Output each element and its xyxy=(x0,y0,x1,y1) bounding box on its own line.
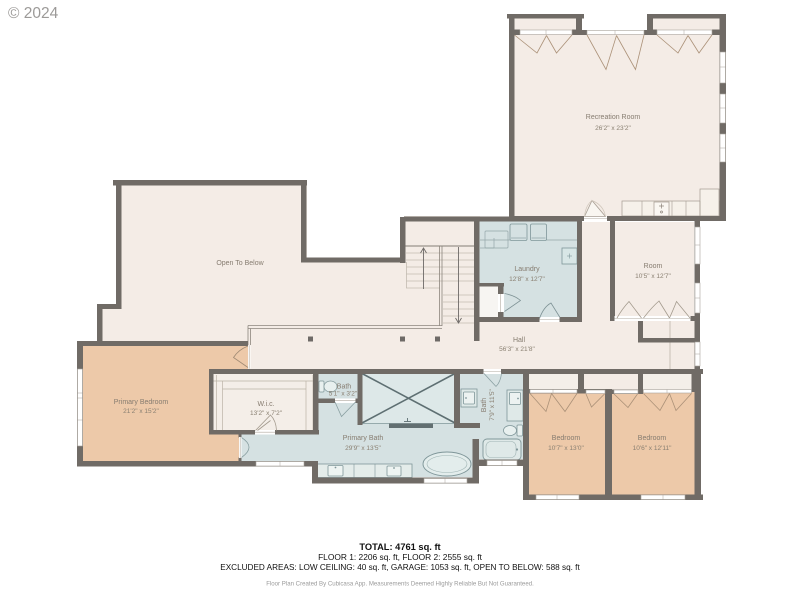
svg-text:29'9" x 13'5": 29'9" x 13'5" xyxy=(345,445,381,452)
svg-text:TOTAL: 4761 sq. ft: TOTAL: 4761 sq. ft xyxy=(359,542,440,552)
svg-text:FLOOR 1: 2206 sq. ft, FLOOR 2:: FLOOR 1: 2206 sq. ft, FLOOR 2: 2555 sq. … xyxy=(318,552,483,562)
svg-text:Bedroom: Bedroom xyxy=(552,435,581,442)
svg-text:Open To Below: Open To Below xyxy=(216,260,264,267)
svg-text:5'1" x 3'2": 5'1" x 3'2" xyxy=(329,391,358,398)
svg-text:Hall: Hall xyxy=(513,337,526,344)
svg-text:21'2" x 15'2": 21'2" x 15'2" xyxy=(123,408,159,415)
svg-text:Recreation Room: Recreation Room xyxy=(586,114,641,121)
svg-text:13'2" x 7'2": 13'2" x 7'2" xyxy=(250,410,283,417)
svg-text:12'8" x 12'7": 12'8" x 12'7" xyxy=(509,276,545,283)
svg-text:10'6" x 12'11": 10'6" x 12'11" xyxy=(633,445,672,452)
svg-text:Primary Bath: Primary Bath xyxy=(343,435,384,442)
svg-text:26'2" x 23'2": 26'2" x 23'2" xyxy=(595,125,631,132)
svg-text:56'3" x 21'8": 56'3" x 21'8" xyxy=(499,346,535,353)
svg-text:10'7" x 13'0": 10'7" x 13'0" xyxy=(548,445,584,452)
svg-text:W.i.c.: W.i.c. xyxy=(257,401,274,408)
svg-text:Bath: Bath xyxy=(337,384,352,391)
svg-text:Bath: Bath xyxy=(481,398,488,413)
svg-text:EXCLUDED AREAS: LOW CEILING: 4: EXCLUDED AREAS: LOW CEILING: 40 sq. ft, … xyxy=(220,563,580,572)
svg-text:Bedroom: Bedroom xyxy=(638,435,667,442)
svg-text:Room: Room xyxy=(644,263,663,270)
svg-text:Floor Plan Created By Cubicasa: Floor Plan Created By Cubicasa App. Meas… xyxy=(266,581,534,588)
svg-text:Laundry: Laundry xyxy=(514,266,540,273)
svg-text:7'9" x 11'5": 7'9" x 11'5" xyxy=(489,389,496,421)
svg-text:Primary Bedroom: Primary Bedroom xyxy=(114,399,169,406)
svg-text:© 2024: © 2024 xyxy=(8,5,59,22)
svg-text:10'5" x 12'7": 10'5" x 12'7" xyxy=(635,273,671,280)
